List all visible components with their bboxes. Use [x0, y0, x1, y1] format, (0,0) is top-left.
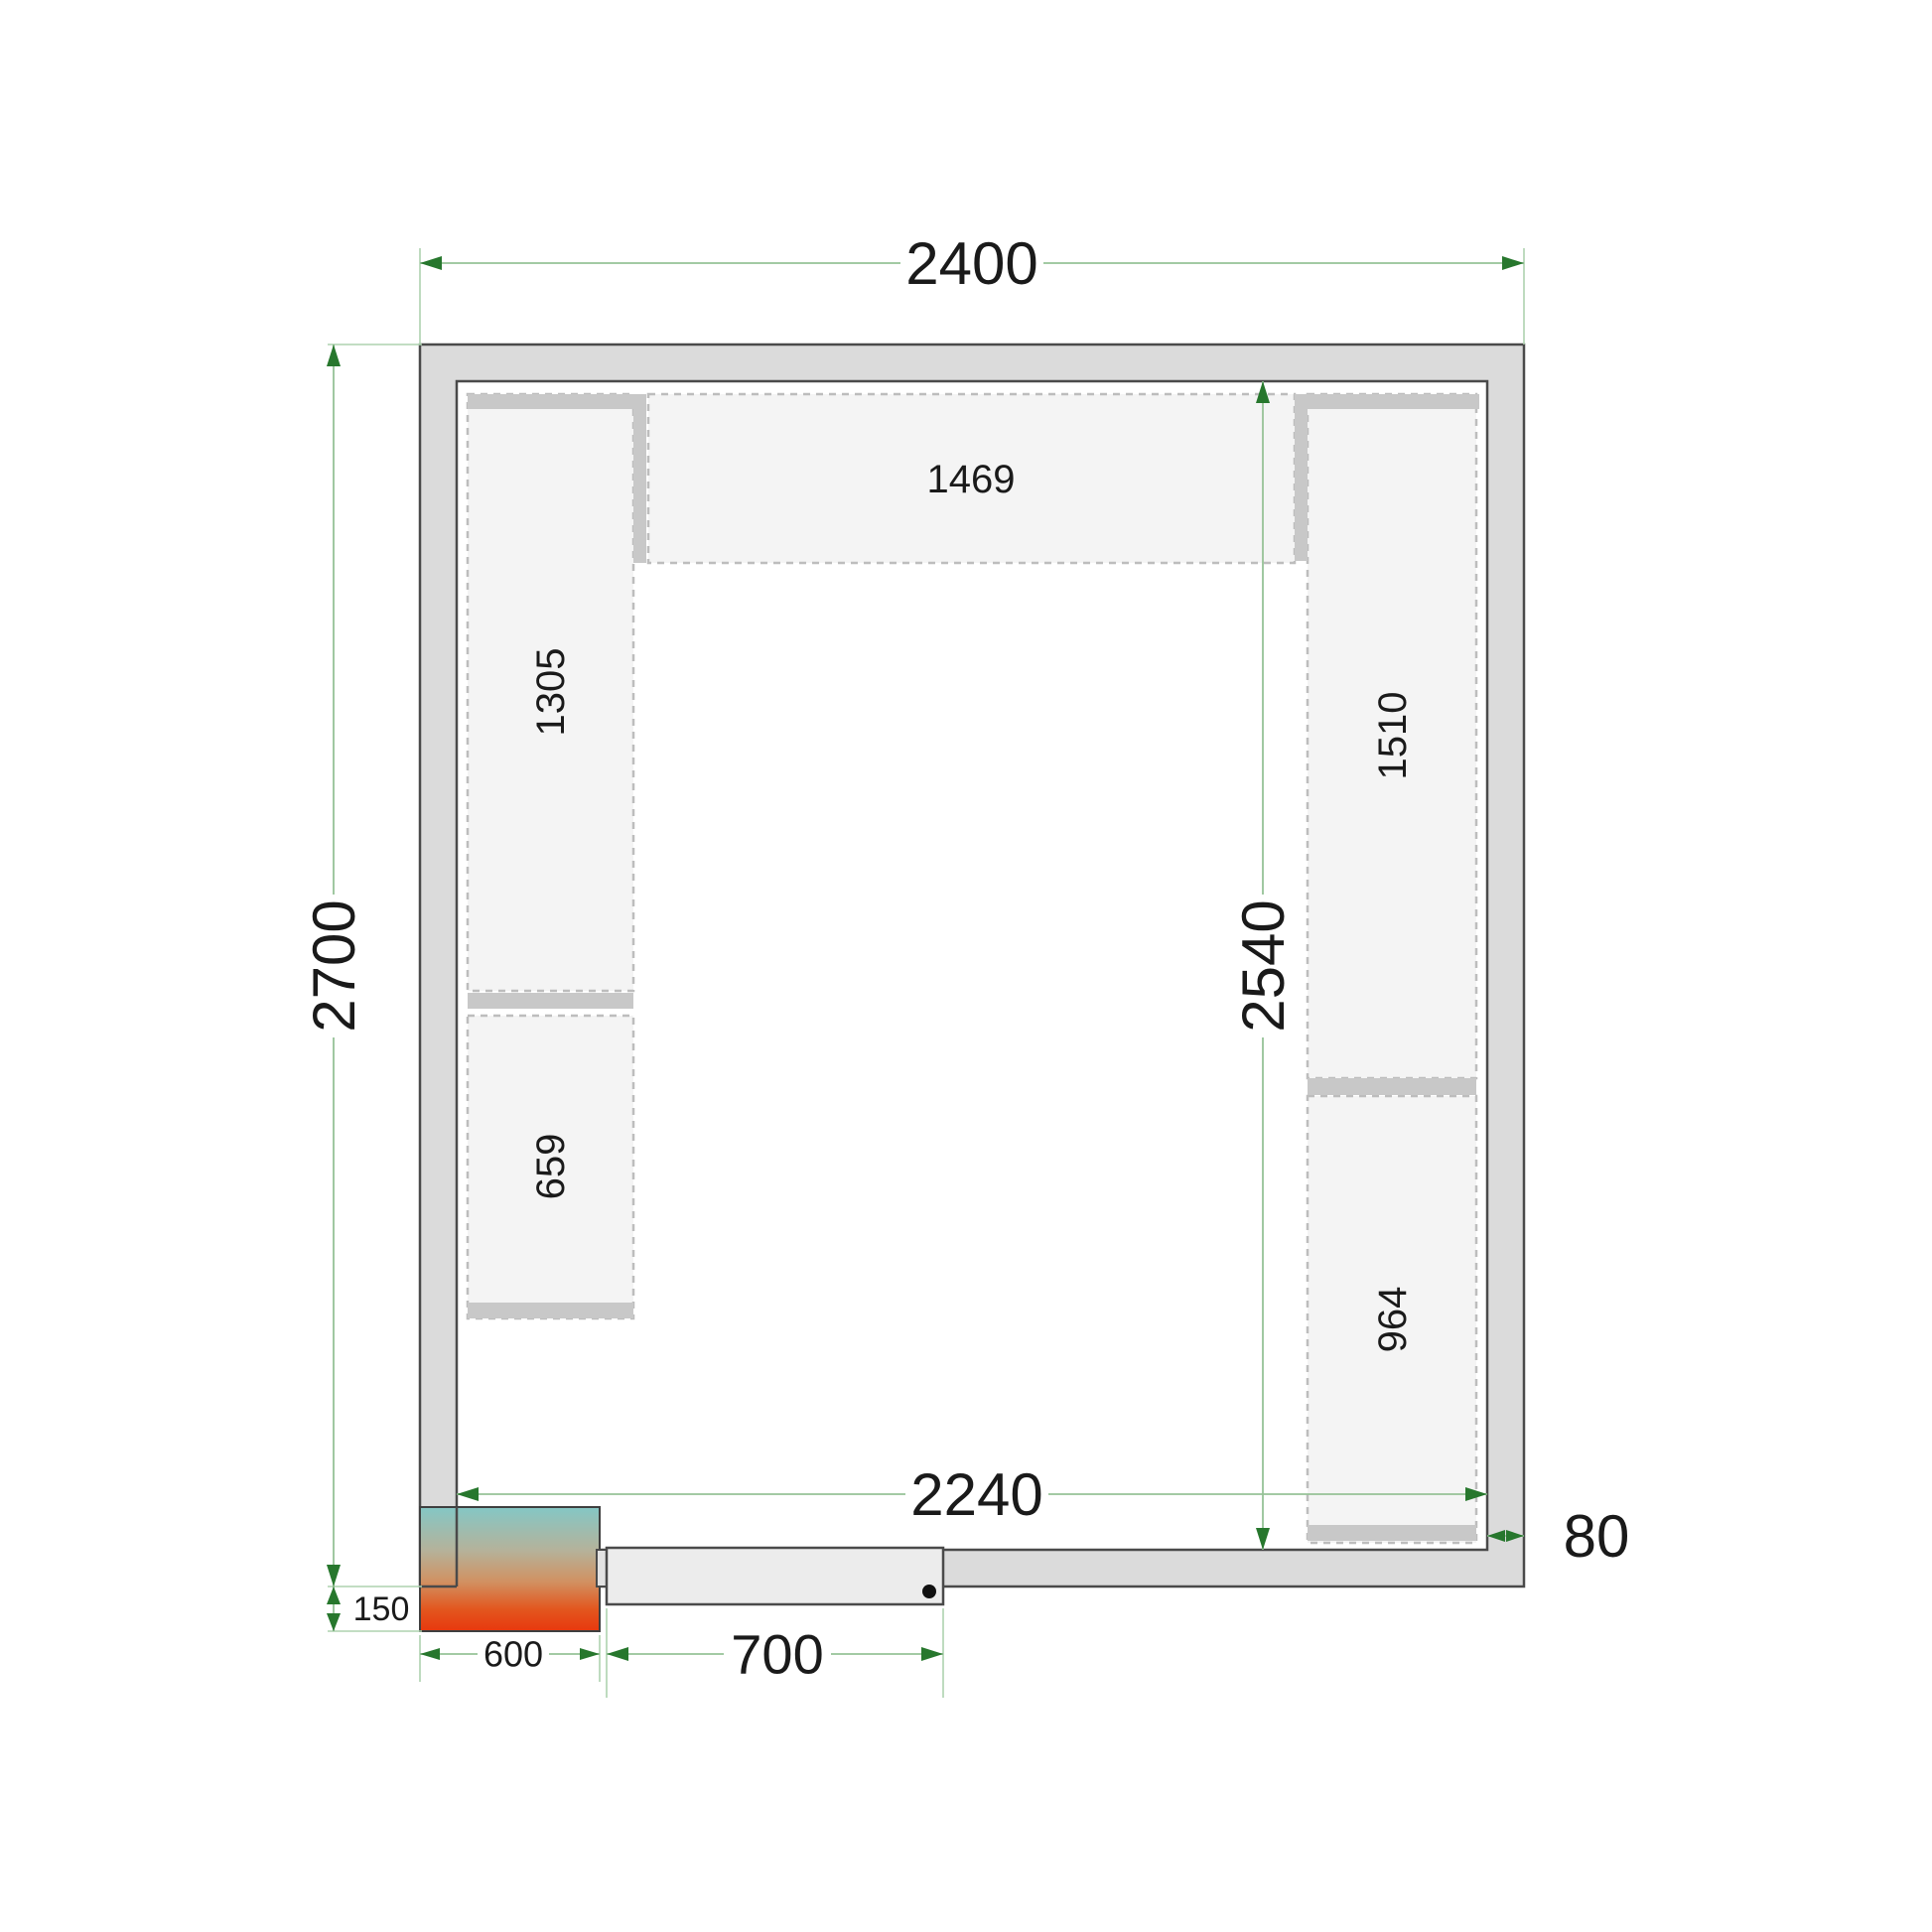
- shelf-support-bar-left-middle: [468, 993, 633, 1009]
- cold-room-plan-page: 2400 2700 2540 2240 80 700 600 150 1469 …: [0, 0, 1932, 1932]
- dim-label-wall-thickness: 80: [1564, 1503, 1630, 1570]
- shelf-support-bar-left-top: [468, 394, 646, 409]
- dim-label-outer-width: 2400: [905, 230, 1037, 297]
- arrow-700-left: [607, 1647, 628, 1661]
- arrow-700-right: [921, 1647, 943, 1661]
- condensing-unit: [420, 1507, 600, 1631]
- shelf-support-bar-right-top: [1295, 394, 1479, 409]
- door: [597, 1548, 943, 1604]
- arrow-2700-bottom: [327, 1565, 341, 1587]
- corner-bracket-right: [1295, 394, 1308, 561]
- arrow-150-top: [327, 1587, 341, 1604]
- shelf-support-bar-right-bottom: [1308, 1525, 1476, 1541]
- dim-label-unit-overhang: 150: [353, 1590, 410, 1628]
- dim-label-door-width: 700: [731, 1623, 823, 1686]
- door-leaf: [607, 1548, 943, 1604]
- shelf-label-right-lower: 964: [1371, 1287, 1415, 1353]
- door-hinge-dot: [922, 1585, 936, 1598]
- cold-room-plan-drawing: 2400 2700 2540 2240 80 700 600 150 1469 …: [0, 0, 1932, 1932]
- shelf-label-top: 1469: [927, 458, 1016, 501]
- condensing-unit-body: [420, 1507, 600, 1631]
- shelf-label-left-lower: 659: [529, 1134, 573, 1200]
- shelf-support-bar-right-middle: [1308, 1078, 1476, 1095]
- dim-label-unit-width: 600: [483, 1634, 543, 1675]
- shelf-label-left-upper: 1305: [529, 648, 573, 737]
- arrow-2700-top: [327, 345, 341, 366]
- arrow-600-right: [580, 1648, 600, 1660]
- dim-label-outer-height: 2700: [301, 899, 367, 1032]
- arrow-600-left: [420, 1648, 440, 1660]
- shelf-support-bar-left-bottom: [468, 1303, 633, 1318]
- corner-bracket-left: [633, 394, 646, 563]
- shelf-label-right-upper: 1510: [1371, 692, 1415, 780]
- arrow-2400-left: [420, 256, 442, 270]
- arrow-2400-right: [1502, 256, 1524, 270]
- dim-label-inner-width: 2240: [910, 1461, 1042, 1528]
- arrow-150-bottom: [327, 1613, 341, 1631]
- dim-label-inner-height: 2540: [1230, 899, 1297, 1032]
